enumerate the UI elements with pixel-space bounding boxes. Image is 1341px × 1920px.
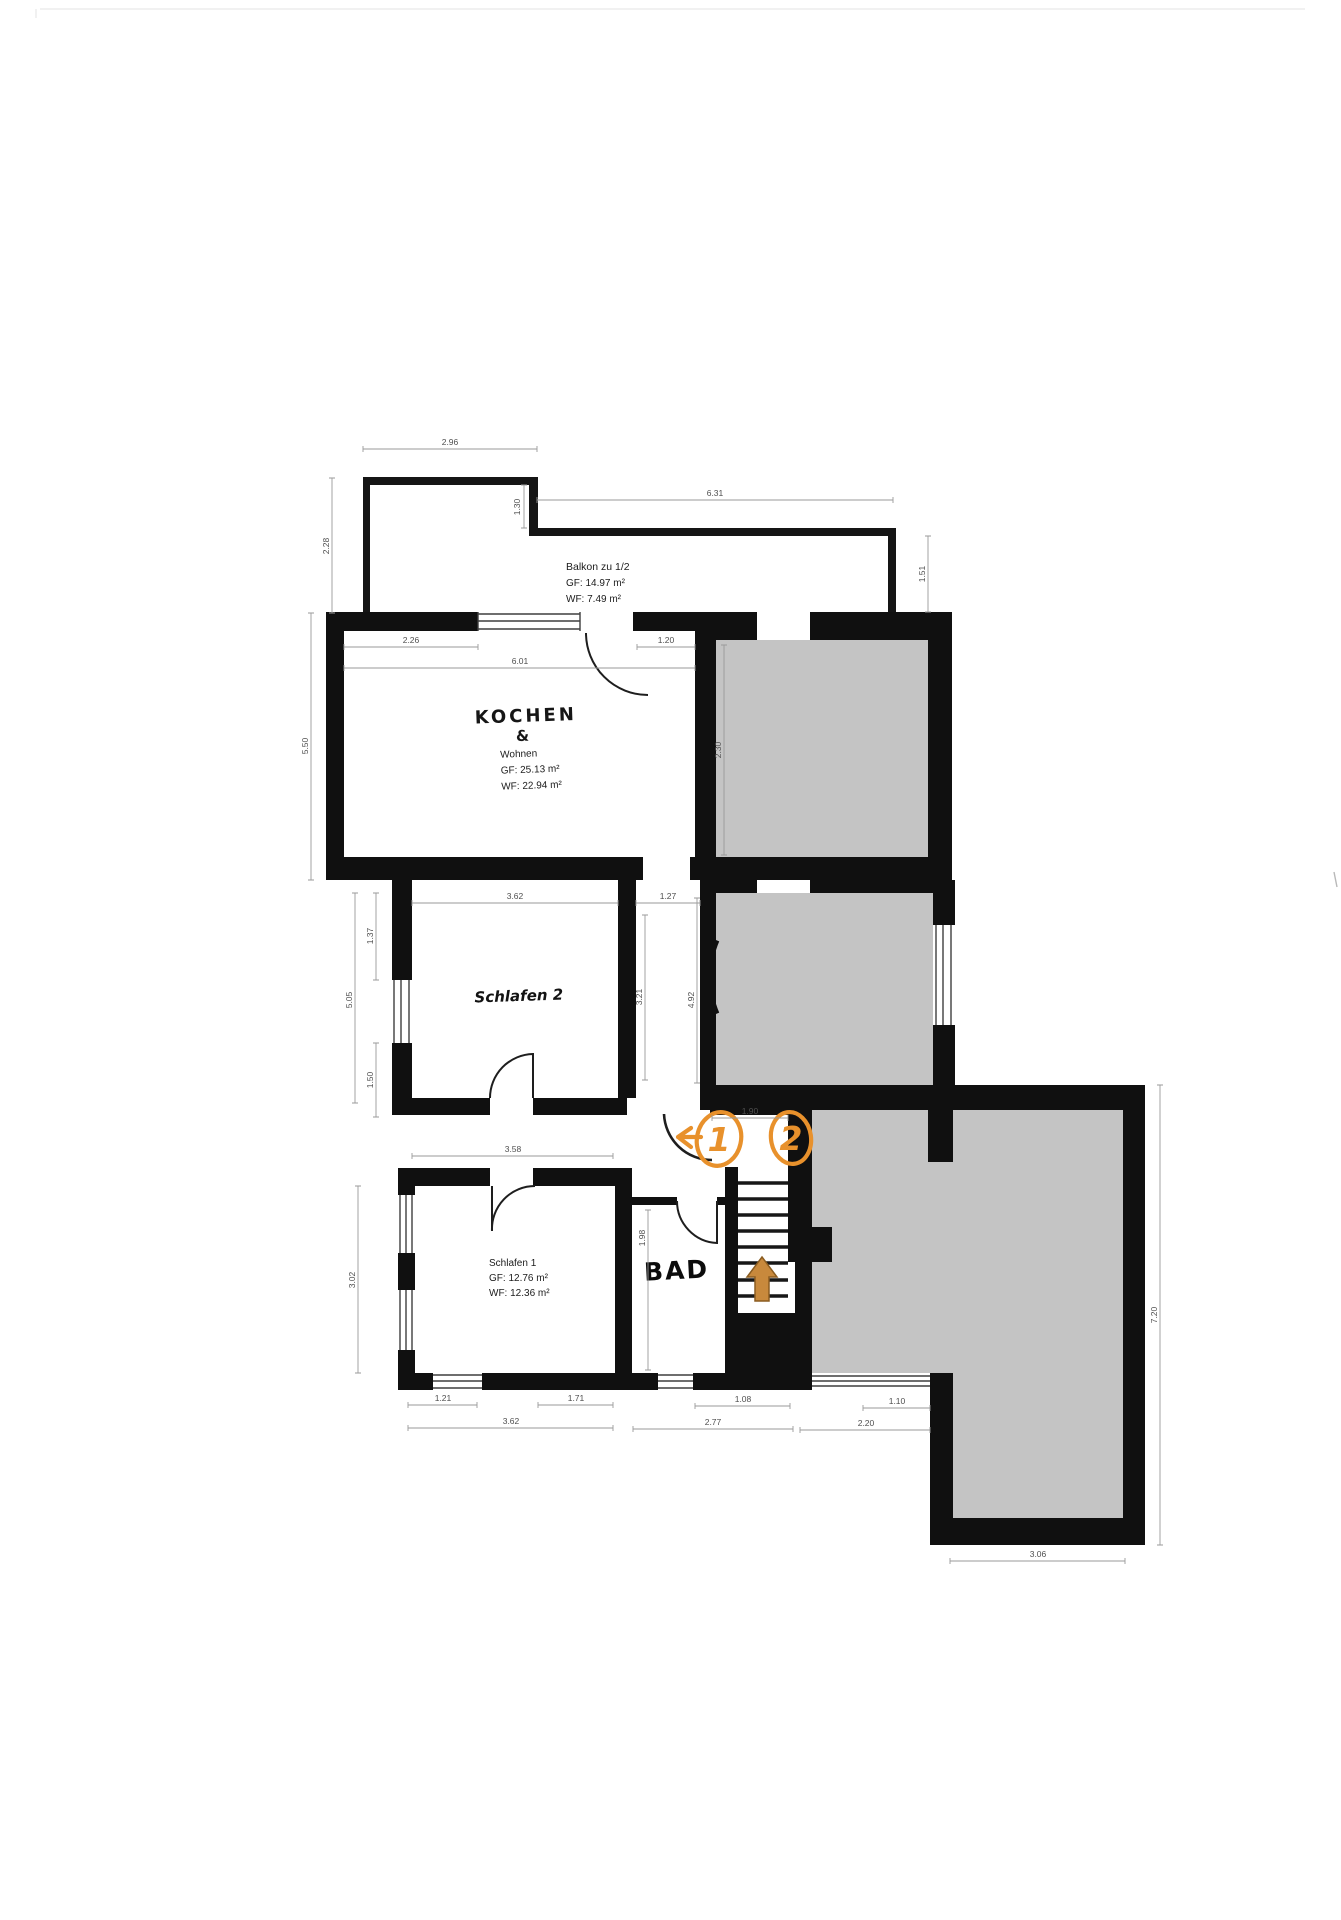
dim-corridor-top: 1.27	[660, 891, 677, 901]
dim-bottom-s2: 2.77	[705, 1417, 722, 1427]
balcony-label: Balkon zu 1/2 GF: 14.97 m² WF: 7.49 m²	[566, 561, 630, 605]
dim-terrace-bottom: 3.06	[1030, 1549, 1047, 1559]
route-marker-2-number: 2	[780, 1119, 803, 1158]
dim-left-lower: 1.50	[365, 1071, 375, 1088]
dim-terrace-a: 1.10	[889, 1396, 906, 1406]
bad-door-arc	[677, 1201, 717, 1243]
dim-bad-h: 1.98	[637, 1229, 647, 1246]
staircase	[738, 1183, 788, 1301]
balcony-gf: GF: 14.97 m²	[566, 578, 626, 589]
schlafen1-label: Schlafen 1 GF: 12.76 m² WF: 12.36 m²	[489, 1258, 550, 1299]
kitchen-gf: GF: 25.13 m²	[501, 764, 561, 777]
kitchen-window	[478, 612, 580, 631]
dim-kitchen-door: 1.20	[658, 635, 675, 645]
schlafen1-window-upper	[400, 1195, 412, 1253]
balcony-walls	[363, 477, 896, 613]
dim-balcony-right-h: 1.51	[917, 565, 927, 582]
floor-plan-drawing: 1 2 Balkon zu 1/2 GF: 14.97 m² WF: 7.49 …	[0, 0, 1341, 1920]
dim-bottom-w3: 1.08	[735, 1394, 752, 1404]
dim-bottom-w2: 1.71	[568, 1393, 585, 1403]
dim-schlafen1-left: 3.02	[347, 1271, 357, 1288]
dim-terrace-right: 7.20	[1149, 1306, 1159, 1323]
kitchen-wf: WF: 22.94 m²	[501, 780, 563, 793]
schlafen2-label: Schlafen 2	[474, 985, 563, 1006]
schlafen2-door-arc	[490, 1054, 533, 1098]
balcony-wf: WF: 7.49 m²	[566, 594, 622, 605]
dim-left-full: 5.05	[344, 991, 354, 1008]
room-labels: Balkon zu 1/2 GF: 14.97 m² WF: 7.49 m² K…	[474, 561, 710, 1299]
route-marker-1-number: 1	[708, 1120, 731, 1159]
schlafen1-wf: WF: 12.36 m²	[489, 1288, 550, 1299]
dim-balcony-top: 2.96	[442, 437, 459, 447]
schlafen2-window	[394, 980, 409, 1043]
dim-corridor-len: 3.21	[634, 988, 644, 1005]
floor-plan-page: 1 2 Balkon zu 1/2 GF: 14.97 m² WF: 7.49 …	[0, 0, 1341, 1920]
bottom-window-1	[433, 1375, 482, 1388]
scan-artifacts	[36, 9, 1337, 887]
kitchen-label: KOCHEN & Wohnen GF: 25.13 m² WF: 22.94 m…	[474, 704, 579, 794]
terrace-railing	[812, 1376, 930, 1386]
kitchen-name-line3: Wohnen	[500, 748, 537, 760]
neighbor-room-top	[716, 640, 928, 857]
neighbor-room-middle	[716, 893, 933, 1085]
dim-left-upper: 1.37	[365, 927, 375, 944]
dim-balcony-step: 1.30	[512, 498, 522, 515]
dim-stairs-door: 1.90	[742, 1106, 759, 1116]
schlafen1-door-arc	[492, 1186, 535, 1231]
kitchen-name-line1: KOCHEN	[474, 704, 577, 729]
dim-schlafen2-top: 3.62	[507, 891, 524, 901]
dim-terrace-b: 2.20	[858, 1418, 875, 1428]
bad-label: BAD	[643, 1254, 710, 1286]
dim-kitchen-full: 6.01	[512, 656, 529, 666]
bad-window	[658, 1375, 693, 1388]
kitchen-name-line2: &	[516, 727, 530, 745]
dim-flur: 3.58	[505, 1144, 522, 1154]
balcony-door-arc	[586, 633, 648, 695]
dim-kitchen-top: 2.26	[403, 635, 420, 645]
dim-corridor-len2: 4.92	[686, 991, 696, 1008]
gray-room-window	[936, 925, 951, 1025]
dim-kitchen-left: 5.50	[300, 737, 310, 754]
schlafen1-gf: GF: 12.76 m²	[489, 1273, 549, 1284]
balcony-name: Balkon zu 1/2	[566, 561, 630, 573]
schlafen1-name: Schlafen 1	[489, 1258, 537, 1269]
dim-balcony-span: 6.31	[707, 488, 724, 498]
dim-bottom-s1: 3.62	[503, 1416, 520, 1426]
schlafen1-window-lower	[400, 1290, 412, 1350]
neighbor-area-bottom	[812, 1110, 1123, 1518]
dim-bottom-w1: 1.21	[435, 1393, 452, 1403]
dim-balcony-left: 2.28	[321, 537, 331, 554]
dim-gray1-left: 2.30	[713, 741, 723, 758]
